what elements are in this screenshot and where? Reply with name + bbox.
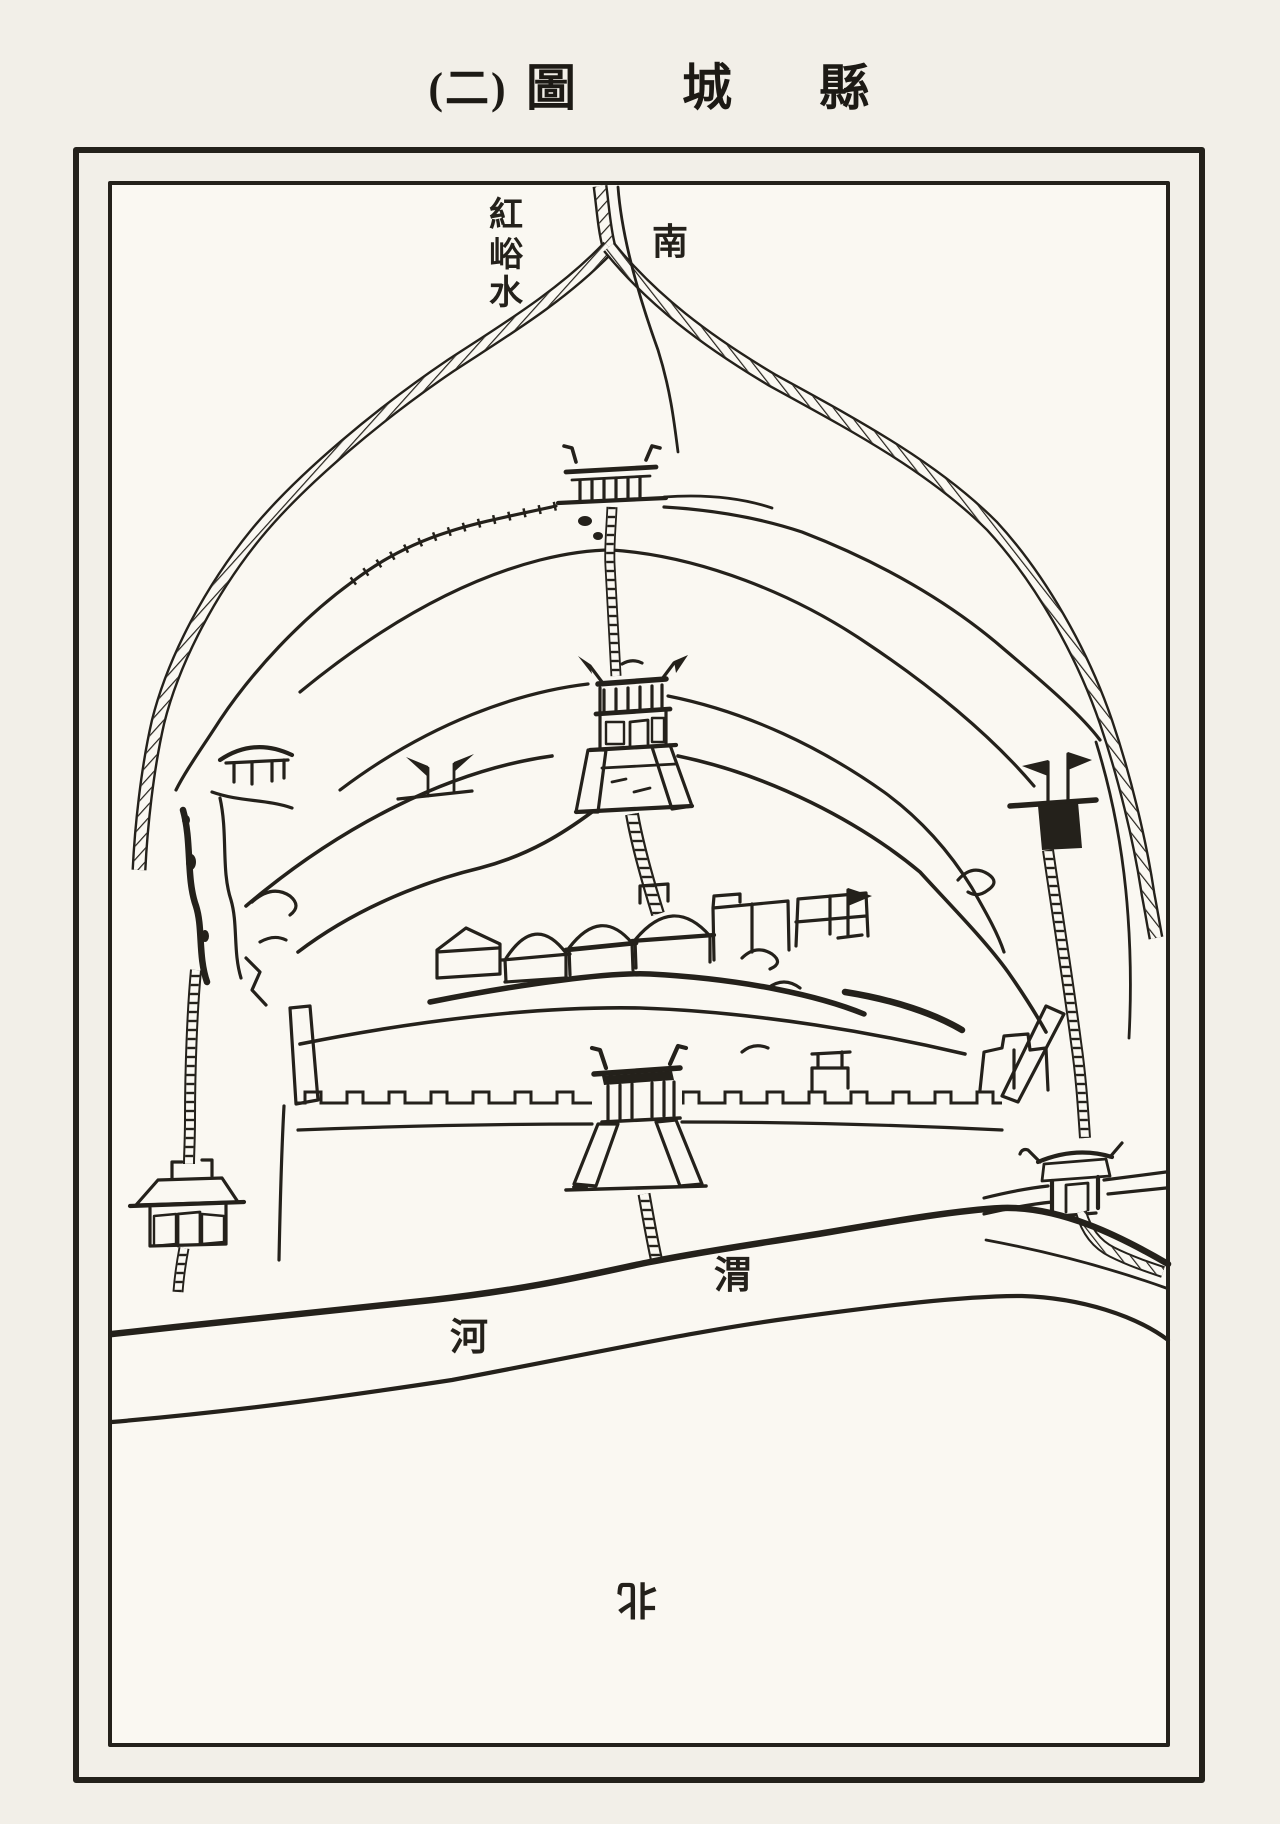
stream-label-char-3: 水	[489, 274, 524, 312]
central-path-upper	[610, 507, 616, 676]
rock-blob	[182, 815, 190, 825]
page-title: (二) 圖 城 縣	[428, 60, 871, 116]
title-char-cheng: 城	[682, 60, 734, 116]
title-part-volume: (二)	[428, 64, 507, 113]
stream-label-char-1: 紅	[489, 196, 523, 234]
south-label: 南	[652, 222, 688, 262]
paper-area	[110, 183, 1168, 1745]
wall-crenellation-left	[296, 1088, 592, 1106]
river-label-wei: 渭	[714, 1255, 752, 1297]
ink-blob	[572, 1184, 588, 1190]
stream-label-hongyushui: 紅 峪 水	[489, 196, 524, 312]
county-city-map: (二) 圖 城 縣 紅 峪 水 南	[0, 0, 1280, 1824]
title-char-xian: 縣	[819, 60, 871, 116]
rock-blob	[186, 854, 196, 870]
flag-tower-base	[1038, 802, 1082, 850]
ink-blob	[593, 532, 603, 540]
rock-blob	[201, 930, 209, 942]
stream-label-char-2: 峪	[489, 236, 524, 274]
scanned-map-page: (二) 圖 城 縣 紅 峪 水 南	[0, 0, 1280, 1824]
river-label-he: 河	[450, 1317, 488, 1359]
wall-crenellation-right	[682, 1088, 1002, 1106]
ink-blob	[578, 516, 592, 526]
title-char-tu: 圖	[526, 60, 578, 116]
north-label: 北	[617, 1577, 657, 1622]
border-frame	[76, 150, 1202, 1780]
